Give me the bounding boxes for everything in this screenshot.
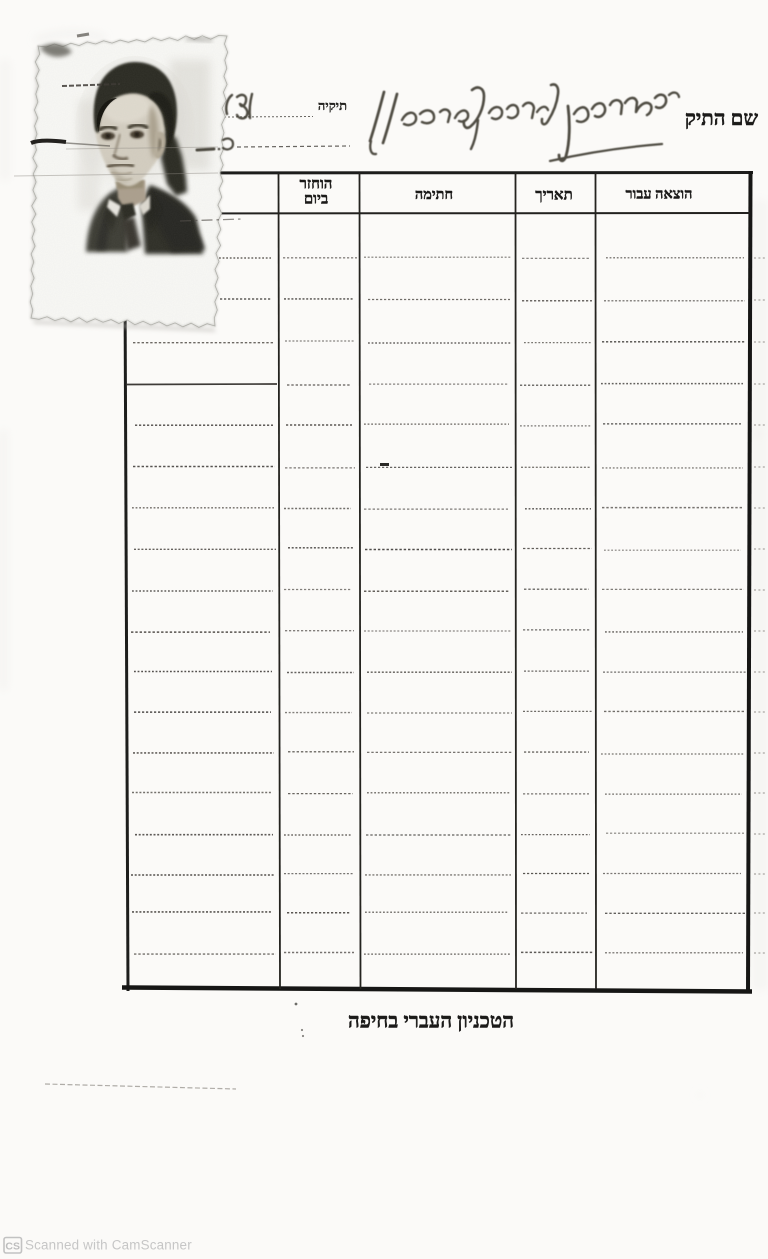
svg-text:Scanned with CamScanner: Scanned with CamScanner (25, 1238, 192, 1253)
svg-text:חתימה: חתימה (415, 187, 453, 203)
svg-text:ביום: ביום (304, 192, 328, 208)
svg-text:הטכניון העברי בחיפה: הטכניון העברי בחיפה (348, 1011, 514, 1033)
svg-text:שם התיק: שם התיק (685, 108, 759, 130)
svg-text:הוצאה עבור: הוצאה עבור (626, 187, 693, 203)
svg-text:תיקיה: תיקיה (318, 98, 347, 113)
svg-text:תאריך: תאריך (535, 188, 572, 204)
svg-text:הוחזר: הוחזר (300, 177, 333, 193)
svg-text:CS: CS (5, 1241, 20, 1253)
